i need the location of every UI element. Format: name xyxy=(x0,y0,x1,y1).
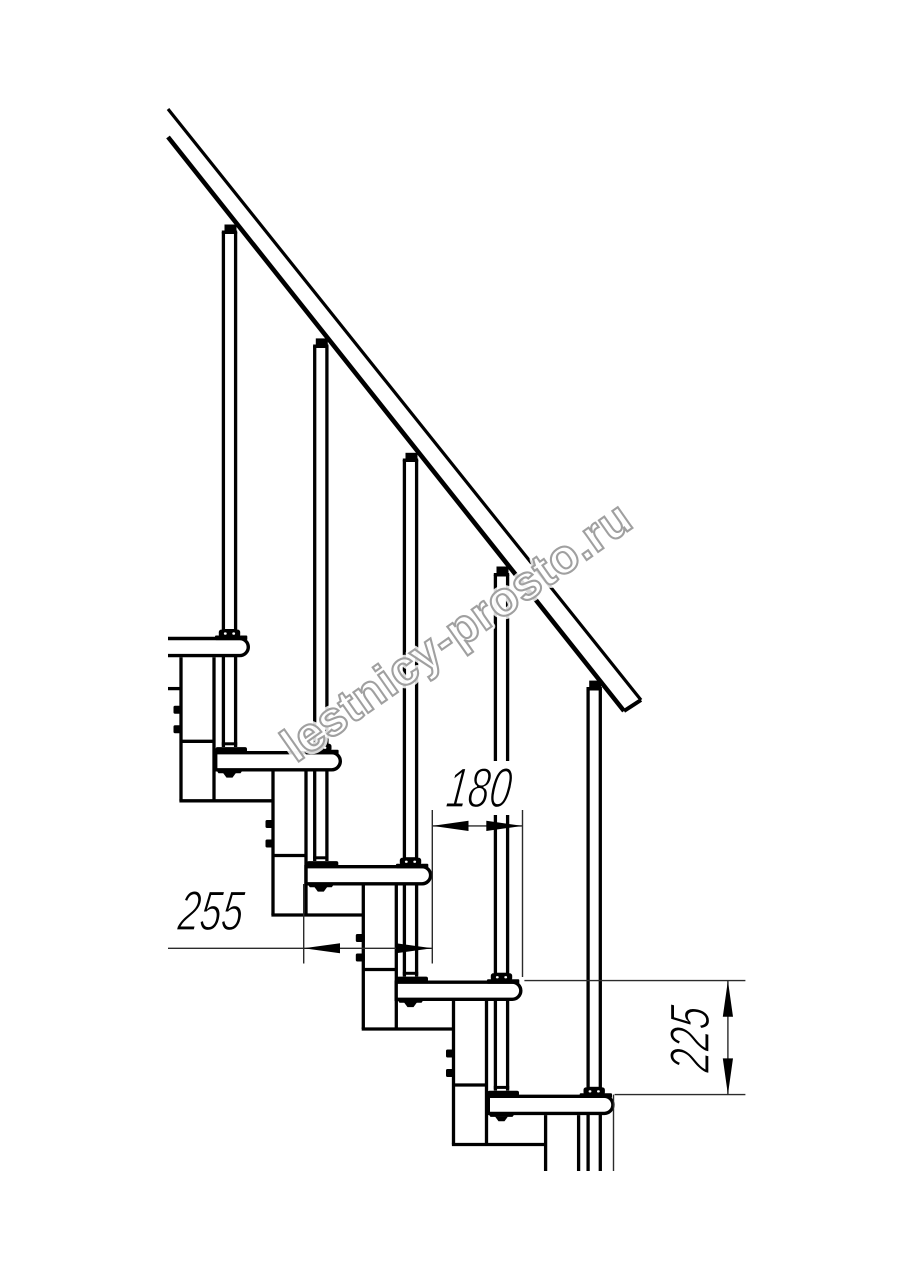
svg-text:255: 255 xyxy=(174,880,247,943)
svg-text:225: 225 xyxy=(659,1003,722,1076)
svg-text:180: 180 xyxy=(443,757,515,820)
